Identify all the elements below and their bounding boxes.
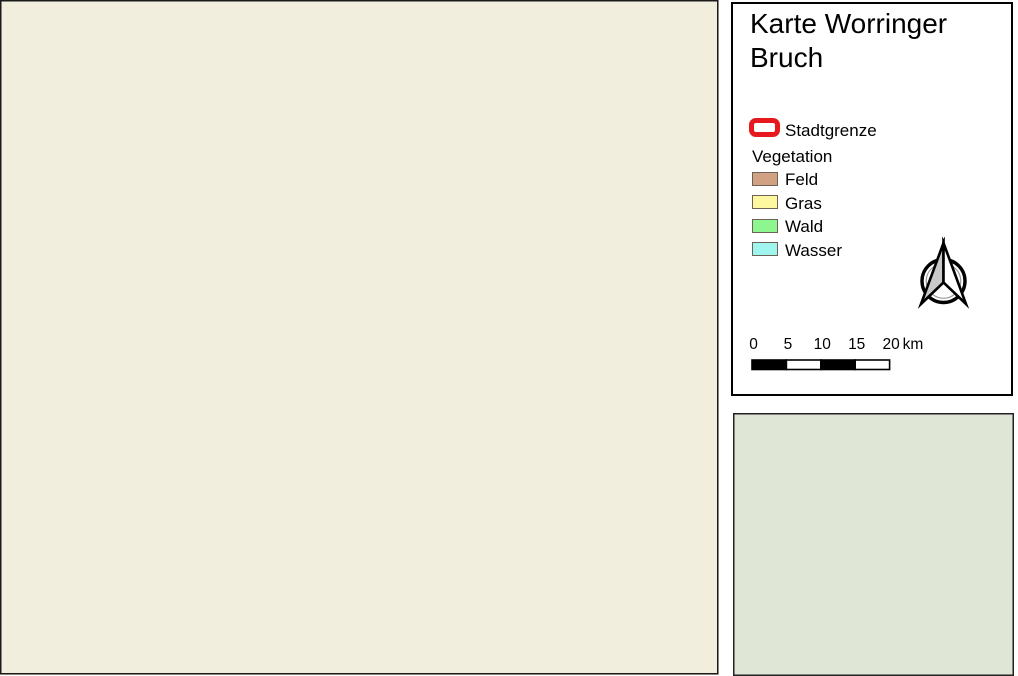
svg-text:15: 15 xyxy=(848,336,865,353)
svg-text:5: 5 xyxy=(784,336,793,353)
svg-text:km: km xyxy=(903,336,924,353)
svg-text:20: 20 xyxy=(882,336,900,353)
svg-text:0: 0 xyxy=(749,336,758,353)
svg-text:10: 10 xyxy=(814,336,832,353)
